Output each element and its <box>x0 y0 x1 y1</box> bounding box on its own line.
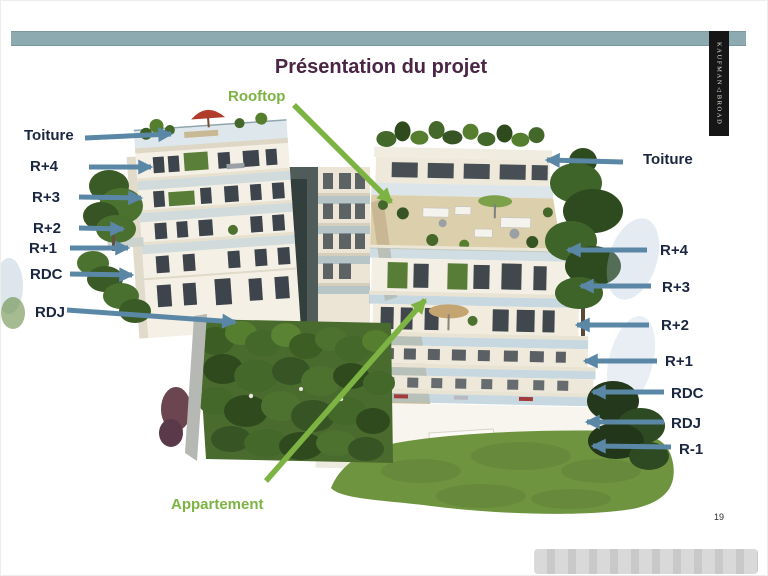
project-rendering <box>1 1 768 576</box>
arrow-left-r2 <box>79 228 123 229</box>
label-left-r1: R+1 <box>29 240 57 257</box>
label-left-r2: R+2 <box>33 220 61 237</box>
page-number: 19 <box>714 512 724 522</box>
label-left-toiture: Toiture <box>24 127 74 144</box>
cast-shadows <box>597 212 669 411</box>
label-left-rdj: RDJ <box>35 304 65 321</box>
label-right-r1: R+1 <box>665 353 693 370</box>
label-left-r4: R+4 <box>30 158 58 175</box>
label-apartment: Appartement <box>171 496 264 513</box>
roof-garden <box>376 120 545 151</box>
label-right-rdj: RDJ <box>671 415 701 432</box>
label-right-r-1: R-1 <box>679 441 703 458</box>
arrow-right-toiture <box>547 160 623 162</box>
garden <box>159 314 395 463</box>
label-right-toiture: Toiture <box>643 151 693 168</box>
label-right-r4: R+4 <box>660 242 688 259</box>
label-left-rdc: RDC <box>30 266 63 283</box>
arrow-right-r-1 <box>593 446 671 447</box>
presentation-slide: KAUFMAN△BROAD Présentation du projet <box>0 0 768 576</box>
label-right-r3: R+3 <box>662 279 690 296</box>
label-rooftop: Rooftop <box>228 88 285 105</box>
label-right-r2: R+2 <box>661 317 689 334</box>
label-left-r3: R+3 <box>32 189 60 206</box>
label-right-rdc: RDC <box>671 385 704 402</box>
arrow-left-r3 <box>79 197 141 198</box>
arrow-left-rdc <box>70 274 132 275</box>
left-edge-foliage <box>1 258 25 329</box>
watermark-overlay <box>534 549 758 574</box>
